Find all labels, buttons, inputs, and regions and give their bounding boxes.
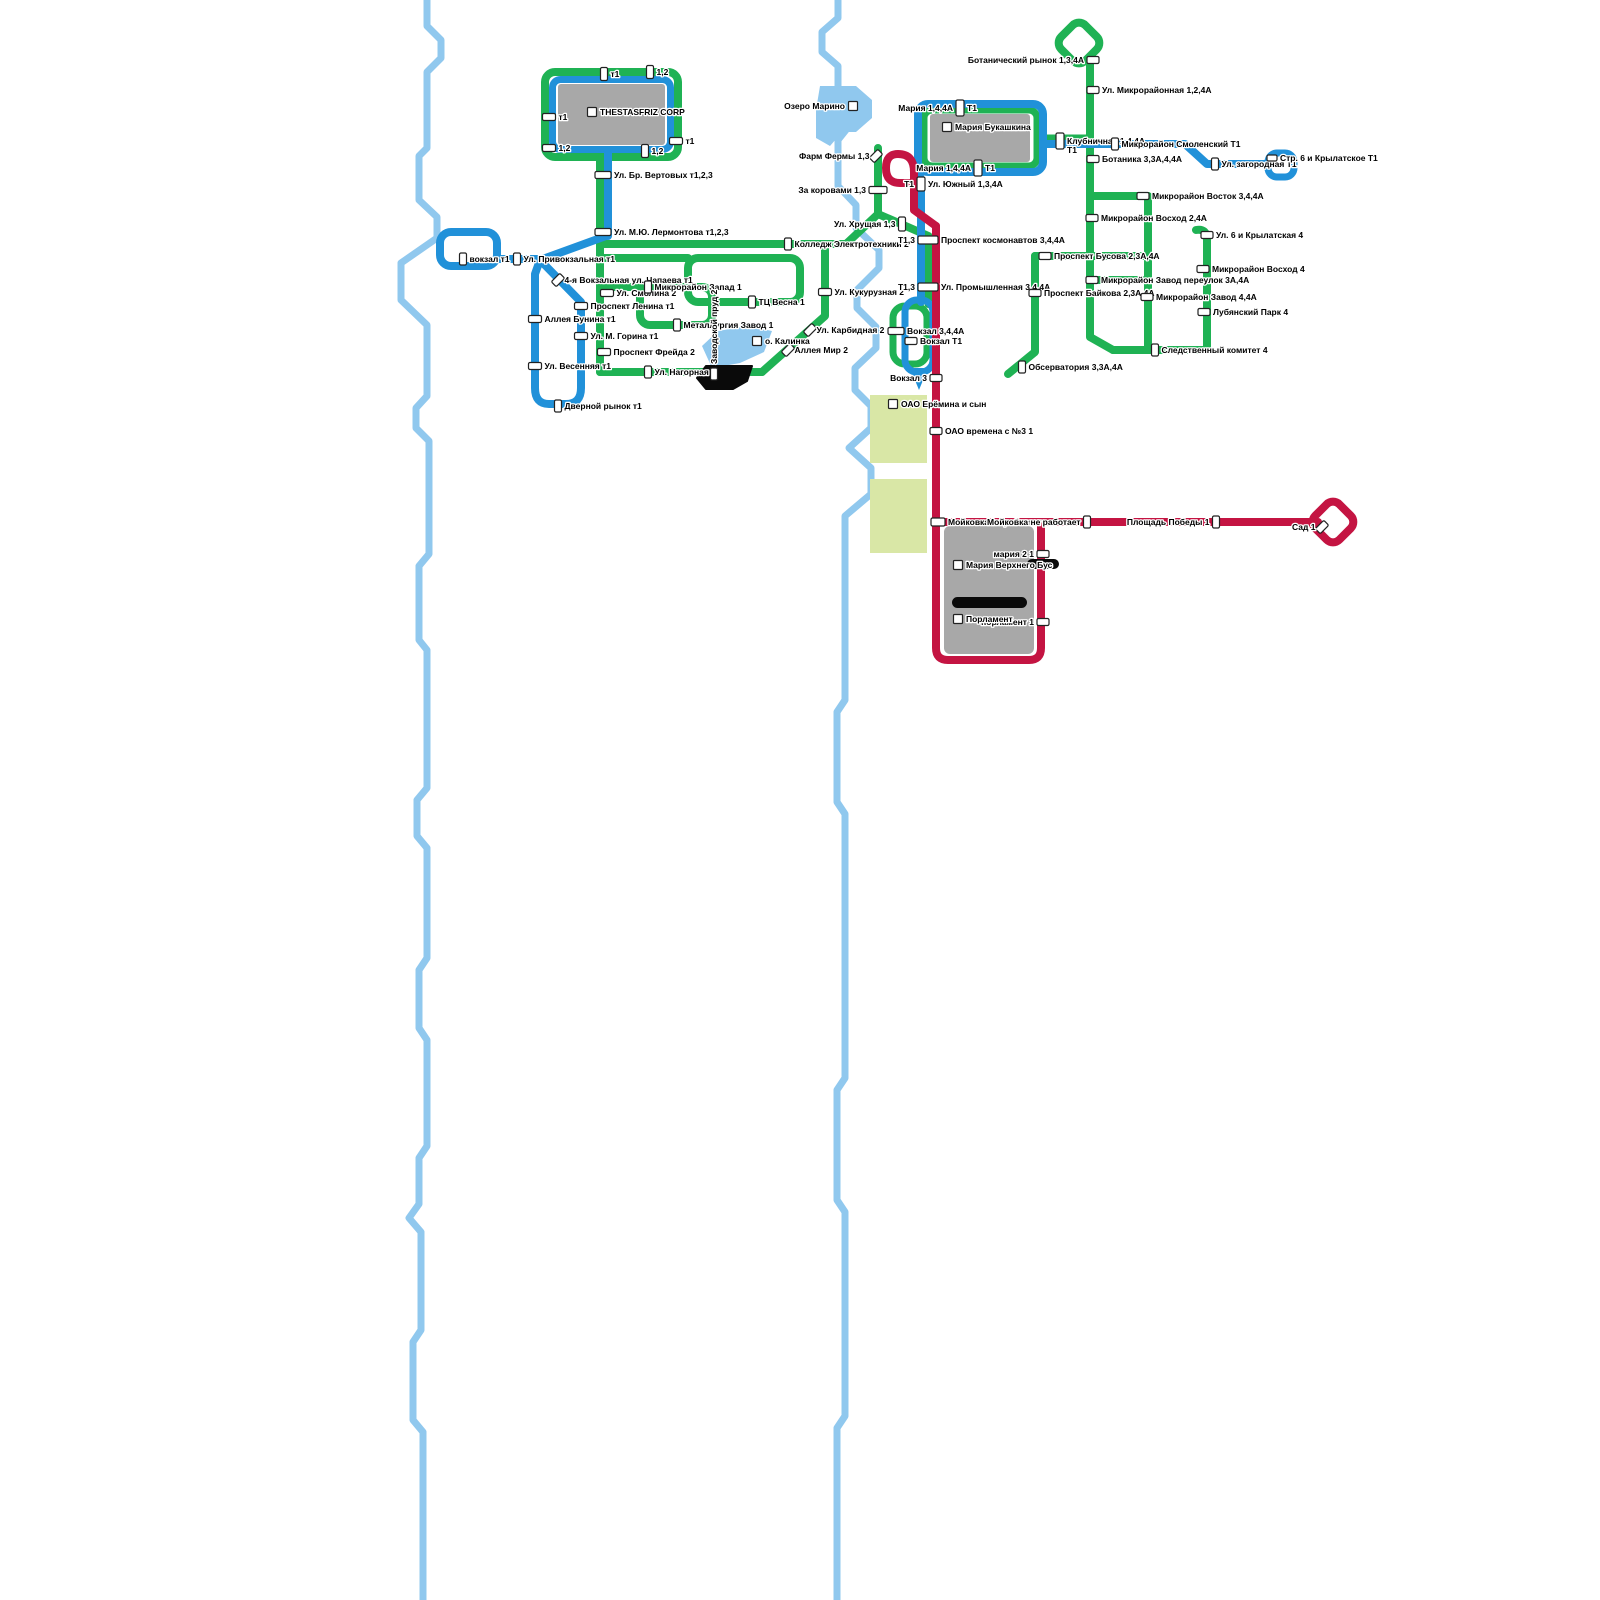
stop: Вокзал 3,4,4A: [888, 326, 964, 336]
stop-marker[interactable]: [930, 375, 942, 382]
stop-label: Ул. Микрорайонная 1,2,4A: [1102, 85, 1212, 95]
stop-marker[interactable]: [647, 66, 654, 79]
stop-label: т1: [611, 69, 620, 79]
stop-marker[interactable]: [1087, 57, 1099, 64]
stop-label: Ботанический рынок 1,3,4A: [968, 55, 1084, 65]
stop: Мойковка не работает: [987, 516, 1090, 528]
stop-marker[interactable]: [598, 349, 611, 356]
stop-label: Ул. Хрущая 1,3: [834, 219, 896, 229]
building-parliament: [944, 526, 1034, 654]
stop-label: Проспект Байкова 2,3A,4A: [1044, 288, 1155, 298]
stop-label: Ботаника 3,3A,4,4A: [1102, 154, 1182, 164]
poi-marker-icon: [889, 400, 898, 409]
stop-marker[interactable]: [642, 145, 649, 158]
poi-label: Порламент: [954, 614, 1013, 624]
stop-marker[interactable]: [918, 283, 938, 291]
stop-label: Ул. Карбидная 2: [817, 325, 885, 335]
stop-label: Микрорайон Смоленский T1: [1122, 139, 1241, 149]
stop-label: Проспект Фрейда 2: [614, 347, 696, 357]
stop: Дверной рынок т1: [555, 400, 643, 412]
poi-label-text: Порламент: [966, 614, 1013, 624]
stop: т1: [601, 68, 620, 81]
stop-label: Мойковка не работает: [987, 517, 1080, 527]
stop-label: Следственный комитет 4: [1162, 345, 1268, 355]
poi-marker-icon: [753, 337, 762, 346]
poi-marker-icon: [588, 108, 597, 117]
poi-marker-icon: [943, 123, 952, 132]
stop-label: Вокзал 3: [890, 373, 927, 383]
stop-marker[interactable]: [674, 319, 681, 331]
stop-marker[interactable]: [917, 177, 925, 191]
stop: Проспект Ленина т1: [575, 301, 675, 311]
stop-label: Микрорайон Завод переулок 3A,4A: [1101, 275, 1249, 285]
stop-marker[interactable]: [555, 400, 562, 412]
stop-label: Вокзал T1: [920, 336, 962, 346]
stop-marker[interactable]: [670, 138, 683, 145]
stop-marker[interactable]: [1198, 309, 1210, 316]
stop: т1: [670, 136, 695, 146]
stop-label: Микрорайон Завод 4,4A: [1156, 292, 1257, 302]
stop-marker[interactable]: [1267, 155, 1277, 161]
stop-label: Металлургия Завод 1: [684, 320, 774, 330]
stop-label: Стр. 6 и Крылатское Т1: [1280, 153, 1378, 163]
stop-marker[interactable]: [543, 114, 556, 121]
stop-label: Микрорайон Восход 4: [1212, 264, 1305, 274]
stop-label: Аллея Бунина т1: [545, 314, 616, 324]
stop: Ул. Кукурузная 2: [819, 287, 905, 297]
stop: Микрорайон Смоленский T1: [1112, 138, 1241, 150]
stop: Микрорайон Восток 3,4,4A: [1137, 191, 1264, 201]
stop-label: Микрорайон Восток 3,4,4A: [1152, 191, 1264, 201]
stop-label: Ул. Бр. Вертовых т1,2,3: [614, 170, 713, 180]
stop: Ул. 6 и Крылатская 4: [1201, 230, 1303, 240]
stop: Лубянский Парк 4: [1198, 307, 1288, 317]
poi-label: Мария Букашкина: [943, 122, 1032, 132]
poi-label-text: о. Калинка: [765, 336, 810, 346]
stop-marker[interactable]: [595, 172, 611, 179]
stop: Микрорайон Восход 2,4A: [1086, 213, 1207, 223]
stop: Ул. Хрущая 1,3: [834, 217, 906, 231]
stop-marker[interactable]: [575, 303, 588, 310]
stop: Обсерватория 3,3A,4A: [1019, 361, 1123, 373]
poi-label: о. Калинка: [753, 336, 810, 346]
stop: Площадь Победы 1: [1127, 516, 1220, 528]
stop-marker[interactable]: [1212, 158, 1219, 170]
stop-label: 1,2: [652, 146, 664, 156]
stop-label: мария 2 1: [994, 549, 1035, 559]
stop-marker[interactable]: [1019, 361, 1026, 373]
stop-label: 1,2: [657, 67, 669, 77]
stop-marker[interactable]: [888, 328, 904, 335]
stop: Микрорайон Завод 4,4A: [1141, 292, 1257, 302]
stop-label: Аллея Мир 2: [795, 345, 849, 355]
stop: Микрорайон Завод переулок 3A,4A: [1086, 275, 1249, 285]
stop-label: T1,3: [898, 282, 915, 292]
stop-marker[interactable]: [601, 68, 608, 81]
stop-marker[interactable]: [1152, 344, 1159, 356]
stop: Проспект Бусова 2,3A,4A: [1039, 251, 1160, 261]
stop-label: т1: [559, 112, 568, 122]
route-green-mall-loop: [688, 258, 800, 302]
stop: Ул. Микрорайонная 1,2,4A: [1087, 85, 1212, 95]
route-green-v4-observatory: [1008, 256, 1035, 374]
stop: Фарм Фермы 1,3: [799, 149, 883, 162]
stop-label: Колледж Электротехники 2: [795, 239, 910, 249]
stop-marker[interactable]: [1112, 138, 1119, 150]
stop-label: T1,3: [898, 235, 915, 245]
stop-marker[interactable]: [1037, 619, 1049, 626]
stop-label: Ул. Кукурузная 2: [835, 287, 905, 297]
stop-label: Ул. М.Ю. Лермонтова т1,2,3: [614, 227, 729, 237]
stop-marker[interactable]: [1087, 156, 1099, 163]
stop-label: Ул. Весенняя т1: [545, 361, 612, 371]
stop-marker[interactable]: [1084, 516, 1091, 528]
stop-label: Вокзал 3,4,4A: [907, 326, 964, 336]
stop: Ул. Привокзальная т1: [514, 253, 616, 265]
transit-map-svg: т11,2т11,2т11,2Ул. Бр. Вертовых т1,2,3Ул…: [0, 0, 1600, 1600]
stop-marker[interactable]: [1087, 87, 1099, 94]
stop-label: Ул. Нагорная 2: [655, 367, 717, 377]
stop-label: т1: [686, 136, 695, 146]
stop-label: За коровами 1,3: [798, 185, 866, 195]
stop-marker[interactable]: [514, 253, 521, 265]
stop-marker[interactable]: [1037, 551, 1049, 558]
stop: Аллея Бунина т1: [529, 314, 616, 324]
stop-label: Микрорайон Запад 1: [655, 282, 742, 292]
stop-marker[interactable]: [543, 145, 556, 152]
stop-label: ОАО времена с №3 1: [945, 426, 1033, 436]
stop: Проспект Байкова 2,3A,4A: [1029, 288, 1155, 298]
transit-map-canvas: т11,2т11,2т11,2Ул. Бр. Вертовых т1,2,3Ул…: [0, 0, 1600, 1600]
stop-label: Ул. М. Горина т1: [591, 331, 659, 341]
stop-label: Микрорайон Восход 2,4A: [1101, 213, 1207, 223]
stop: Вокзал 3: [890, 373, 942, 383]
stop-marker[interactable]: [930, 428, 942, 435]
stop-marker[interactable]: [1197, 266, 1209, 273]
stop-label: Проспект Бусова 2,3A,4A: [1054, 251, 1160, 261]
stop-marker[interactable]: [460, 253, 467, 265]
stop-label: Ул. Южный 1,3,4A: [928, 179, 1003, 189]
stop-marker[interactable]: [918, 236, 938, 244]
poi-label-text: THESTASFRIZ CORP: [600, 107, 685, 117]
stop-label: ТЦ Весна 1: [759, 297, 805, 307]
route-red-garden-terminal: [1309, 498, 1357, 546]
stop-marker[interactable]: [711, 368, 718, 380]
stop-marker[interactable]: [749, 296, 756, 308]
stop: Колледж Электротехники 2: [785, 238, 910, 250]
stop-marker[interactable]: [1086, 215, 1098, 222]
stop-marker[interactable]: [869, 187, 887, 194]
stop-label: Фарм Фермы 1,3: [799, 151, 870, 161]
stop: 1,2: [642, 145, 664, 158]
censor-bar-long: [953, 598, 1026, 607]
poi-label-text: Мария Верхнего Бус: [966, 560, 1053, 570]
stop: Ботаника 3,3A,4,4A: [1087, 154, 1182, 164]
stop-label: Дверной рынок т1: [565, 401, 643, 411]
stop-label: Мария 1,4,4A: [916, 163, 971, 173]
stop-marker[interactable]: [899, 217, 906, 231]
poi-label: THESTASFRIZ CORP: [588, 107, 686, 117]
stop: Проспект Фрейда 2: [598, 347, 696, 357]
stop-marker[interactable]: [785, 238, 792, 250]
stop: Ул. Нагорная 2: [645, 366, 717, 378]
stop-marker[interactable]: [645, 366, 652, 378]
stop-marker[interactable]: [645, 281, 652, 293]
stop-label: 1,2: [559, 143, 571, 153]
stop-marker[interactable]: [1039, 253, 1051, 260]
poi-label-text: Озеро Марино: [784, 101, 845, 111]
stop-label: T1: [904, 179, 914, 189]
stop-label-vertical: Заводской пруд 2: [709, 289, 719, 364]
poi-label-text: ОАО Ерёмина и сын: [901, 399, 986, 409]
stop: Металлургия Завод 1: [674, 319, 774, 331]
stop-marker[interactable]: [1201, 232, 1213, 239]
stop: Ул. М.Ю. Лермонтова т1,2,3: [595, 227, 729, 237]
stop-marker[interactable]: [974, 160, 982, 176]
stop-marker[interactable]: [529, 363, 542, 370]
stop-marker[interactable]: [1141, 294, 1153, 301]
stop: Следственный комитет 4: [1152, 344, 1268, 356]
poi-marker-icon: [849, 102, 858, 111]
stop-marker[interactable]: [1137, 193, 1149, 200]
stop-label: T1: [967, 103, 977, 113]
poi-label: Мария Верхнего Бус: [954, 560, 1053, 570]
stop-marker[interactable]: [595, 229, 611, 236]
stop-marker[interactable]: [575, 333, 588, 340]
stop: мария 2 1: [994, 549, 1049, 559]
stop-marker[interactable]: [1213, 516, 1220, 528]
stop-label: Ул. Привокзальная т1: [524, 254, 616, 264]
stop: вокзал т1: [460, 253, 510, 265]
route-green-v3: [1196, 230, 1207, 350]
stop: Микрорайон Восход 4: [1197, 264, 1305, 274]
stop-label: Площадь Победы 1: [1127, 517, 1210, 527]
route-green-v1: [1090, 60, 1113, 350]
stop: Вокзал T1: [905, 336, 962, 346]
poi-label-text: Мария Букашкина: [955, 122, 1031, 132]
stop-label: Проспект Ленина т1: [591, 301, 675, 311]
stop-label: Мария 1,4,4A: [898, 103, 953, 113]
stop-label: вокзал т1: [470, 254, 510, 264]
stop: Ул. Весенняя т1: [529, 361, 612, 371]
green-zone-b: [870, 479, 927, 553]
stop-label: Лубянский Парк 4: [1213, 307, 1288, 317]
stop-label: Обсерватория 3,3A,4A: [1029, 362, 1123, 372]
stop: Ботанический рынок 1,3,4A: [968, 55, 1099, 65]
stop: T1Ул. Южный 1,3,4A: [904, 177, 1003, 191]
stop-marker[interactable]: [931, 518, 945, 526]
stop-marker[interactable]: [529, 316, 542, 323]
stop: T1,3Ул. Промышленная 3,4,4A: [898, 282, 1050, 292]
stop: За коровами 1,3: [798, 185, 887, 195]
stop-marker[interactable]: [1086, 277, 1098, 284]
stop: Ул. М. Горина т1: [575, 331, 659, 341]
stop-label: Сад 1: [1292, 522, 1316, 532]
poi-label: ОАО Ерёмина и сын: [889, 399, 987, 409]
stop-marker[interactable]: [1056, 133, 1064, 149]
stop-marker[interactable]: [819, 289, 832, 296]
stop: т1: [543, 112, 568, 122]
stop-label: T1: [985, 163, 995, 173]
river-left: [401, 0, 441, 1600]
stop: Микрорайон Запад 1: [645, 281, 742, 293]
stop-label: Проспект космонавтов 3,4,4A: [941, 235, 1065, 245]
stop-marker[interactable]: [905, 338, 917, 345]
stop-label: Ул. 6 и Крылатская 4: [1216, 230, 1303, 240]
stop: Стр. 6 и Крылатское Т1: [1267, 153, 1378, 163]
stop: ОАО времена с №3 1: [930, 426, 1033, 436]
poi-marker-icon: [954, 615, 963, 624]
stop: Ул. Бр. Вертовых т1,2,3: [595, 170, 713, 180]
stop-marker[interactable]: [956, 100, 964, 116]
poi-marker-icon: [954, 561, 963, 570]
stop-marker[interactable]: [601, 290, 614, 297]
stop: 1,2: [647, 66, 669, 79]
stop: T1,3Проспект космонавтов 3,4,4A: [898, 235, 1065, 245]
stop-marker[interactable]: [1029, 290, 1041, 297]
